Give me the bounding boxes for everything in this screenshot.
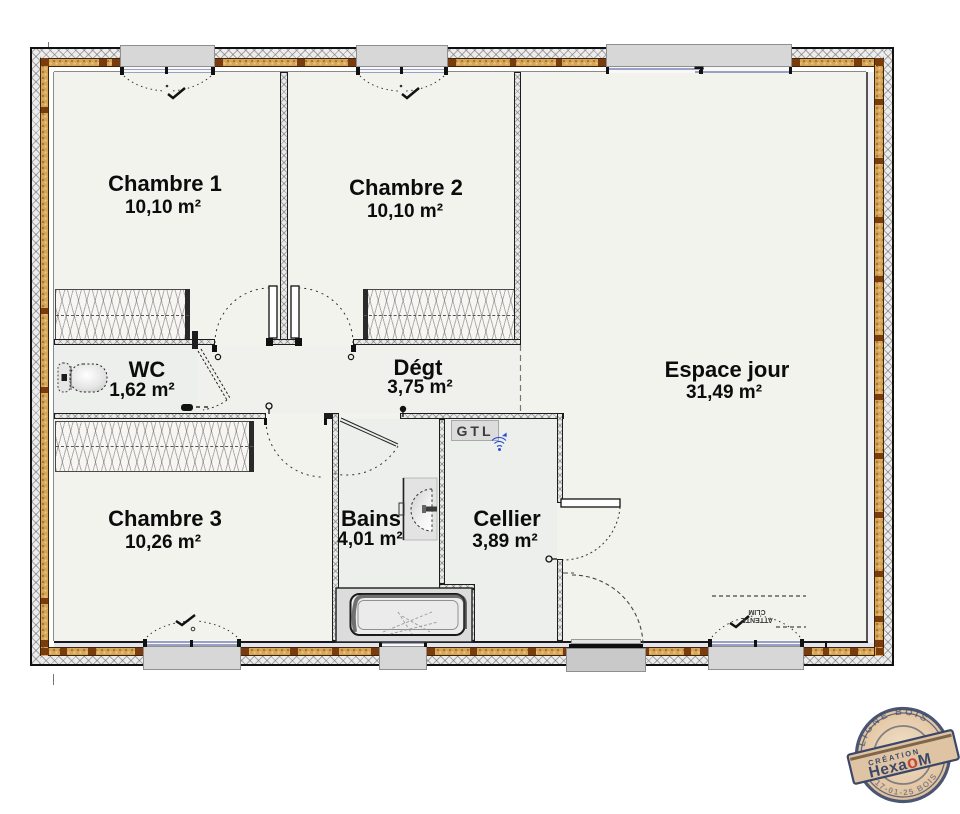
svg-text:CLIM: CLIM <box>748 608 765 615</box>
svg-text:ATTENTE: ATTENTE <box>741 616 773 623</box>
